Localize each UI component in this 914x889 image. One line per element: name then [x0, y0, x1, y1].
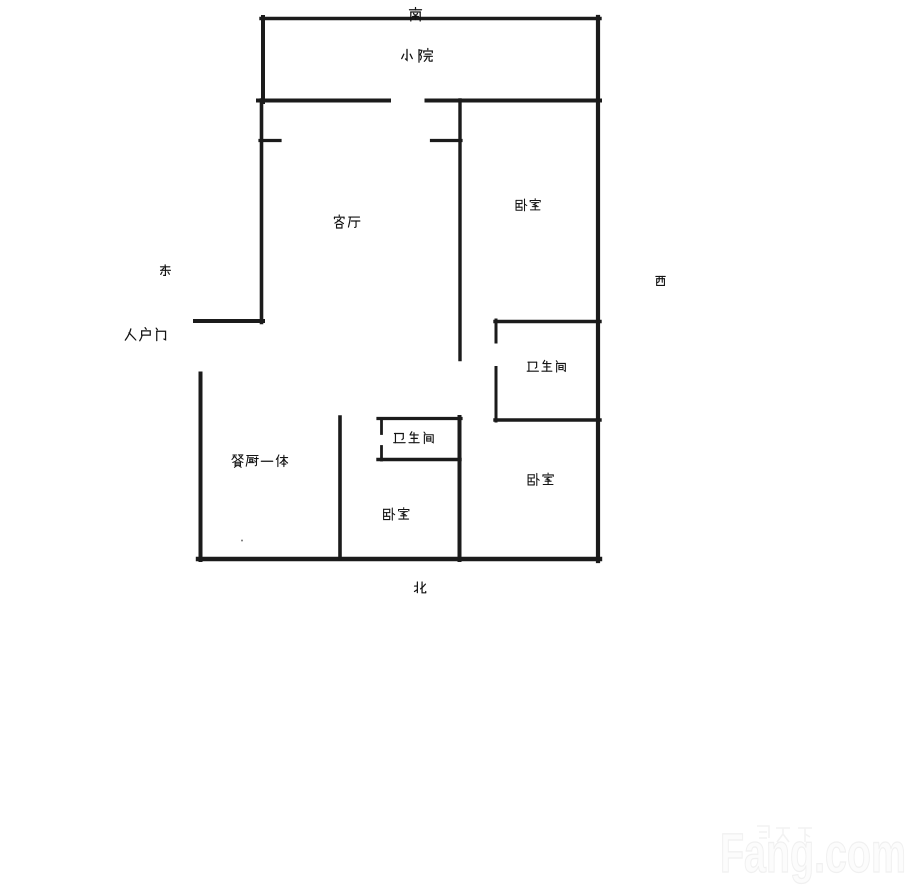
svg-text:Fang.com: Fang.com	[720, 821, 906, 884]
